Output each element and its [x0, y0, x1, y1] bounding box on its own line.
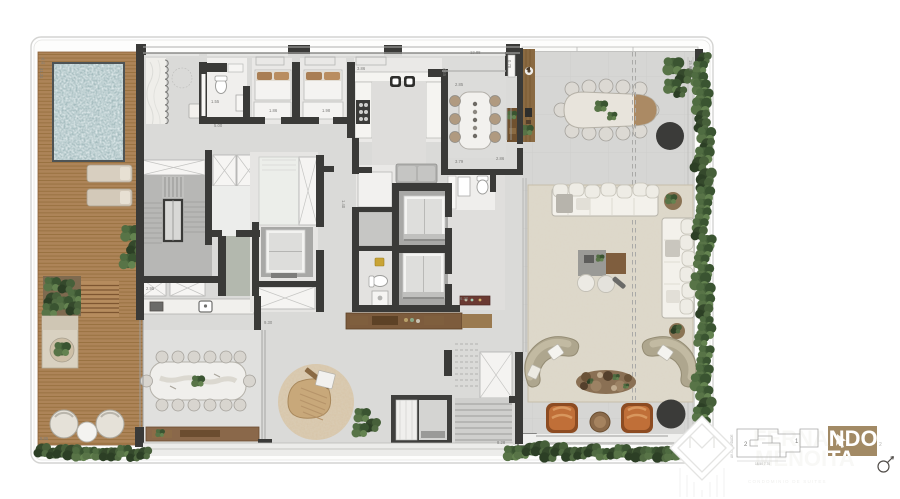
- svg-text:8.28: 8.28: [497, 440, 506, 445]
- svg-text:6.20: 6.20: [460, 296, 469, 301]
- svg-text:3.86: 3.86: [357, 66, 366, 71]
- svg-text:1.40: 1.40: [341, 200, 346, 209]
- svg-text:1.98: 1.98: [322, 108, 331, 113]
- svg-text:2.85: 2.85: [455, 82, 464, 87]
- svg-text:31: 31: [41, 61, 45, 65]
- svg-text:12.88: 12.88: [470, 50, 481, 55]
- svg-text:5.00: 5.00: [214, 123, 223, 128]
- svg-text:CONDOMINIO DE SUITES: CONDOMINIO DE SUITES: [748, 479, 827, 484]
- svg-text:1.86: 1.86: [269, 108, 278, 113]
- svg-text:31.31: 31.31: [39, 68, 44, 79]
- svg-text:4.65: 4.65: [442, 68, 447, 77]
- svg-text:2.95: 2.95: [146, 286, 155, 291]
- svg-text:9.30: 9.30: [264, 320, 273, 325]
- svg-text:15.98: 15.98: [688, 60, 693, 71]
- svg-text:18.50 7.70: 18.50 7.70: [755, 462, 770, 466]
- svg-text:5.85: 5.85: [40, 436, 49, 441]
- svg-text:0.70: 0.70: [507, 60, 512, 69]
- svg-text:2.86: 2.86: [496, 156, 505, 161]
- svg-text:1.55: 1.55: [211, 99, 220, 104]
- svg-text:3.79: 3.79: [455, 159, 464, 164]
- svg-text:2: 2: [879, 442, 882, 448]
